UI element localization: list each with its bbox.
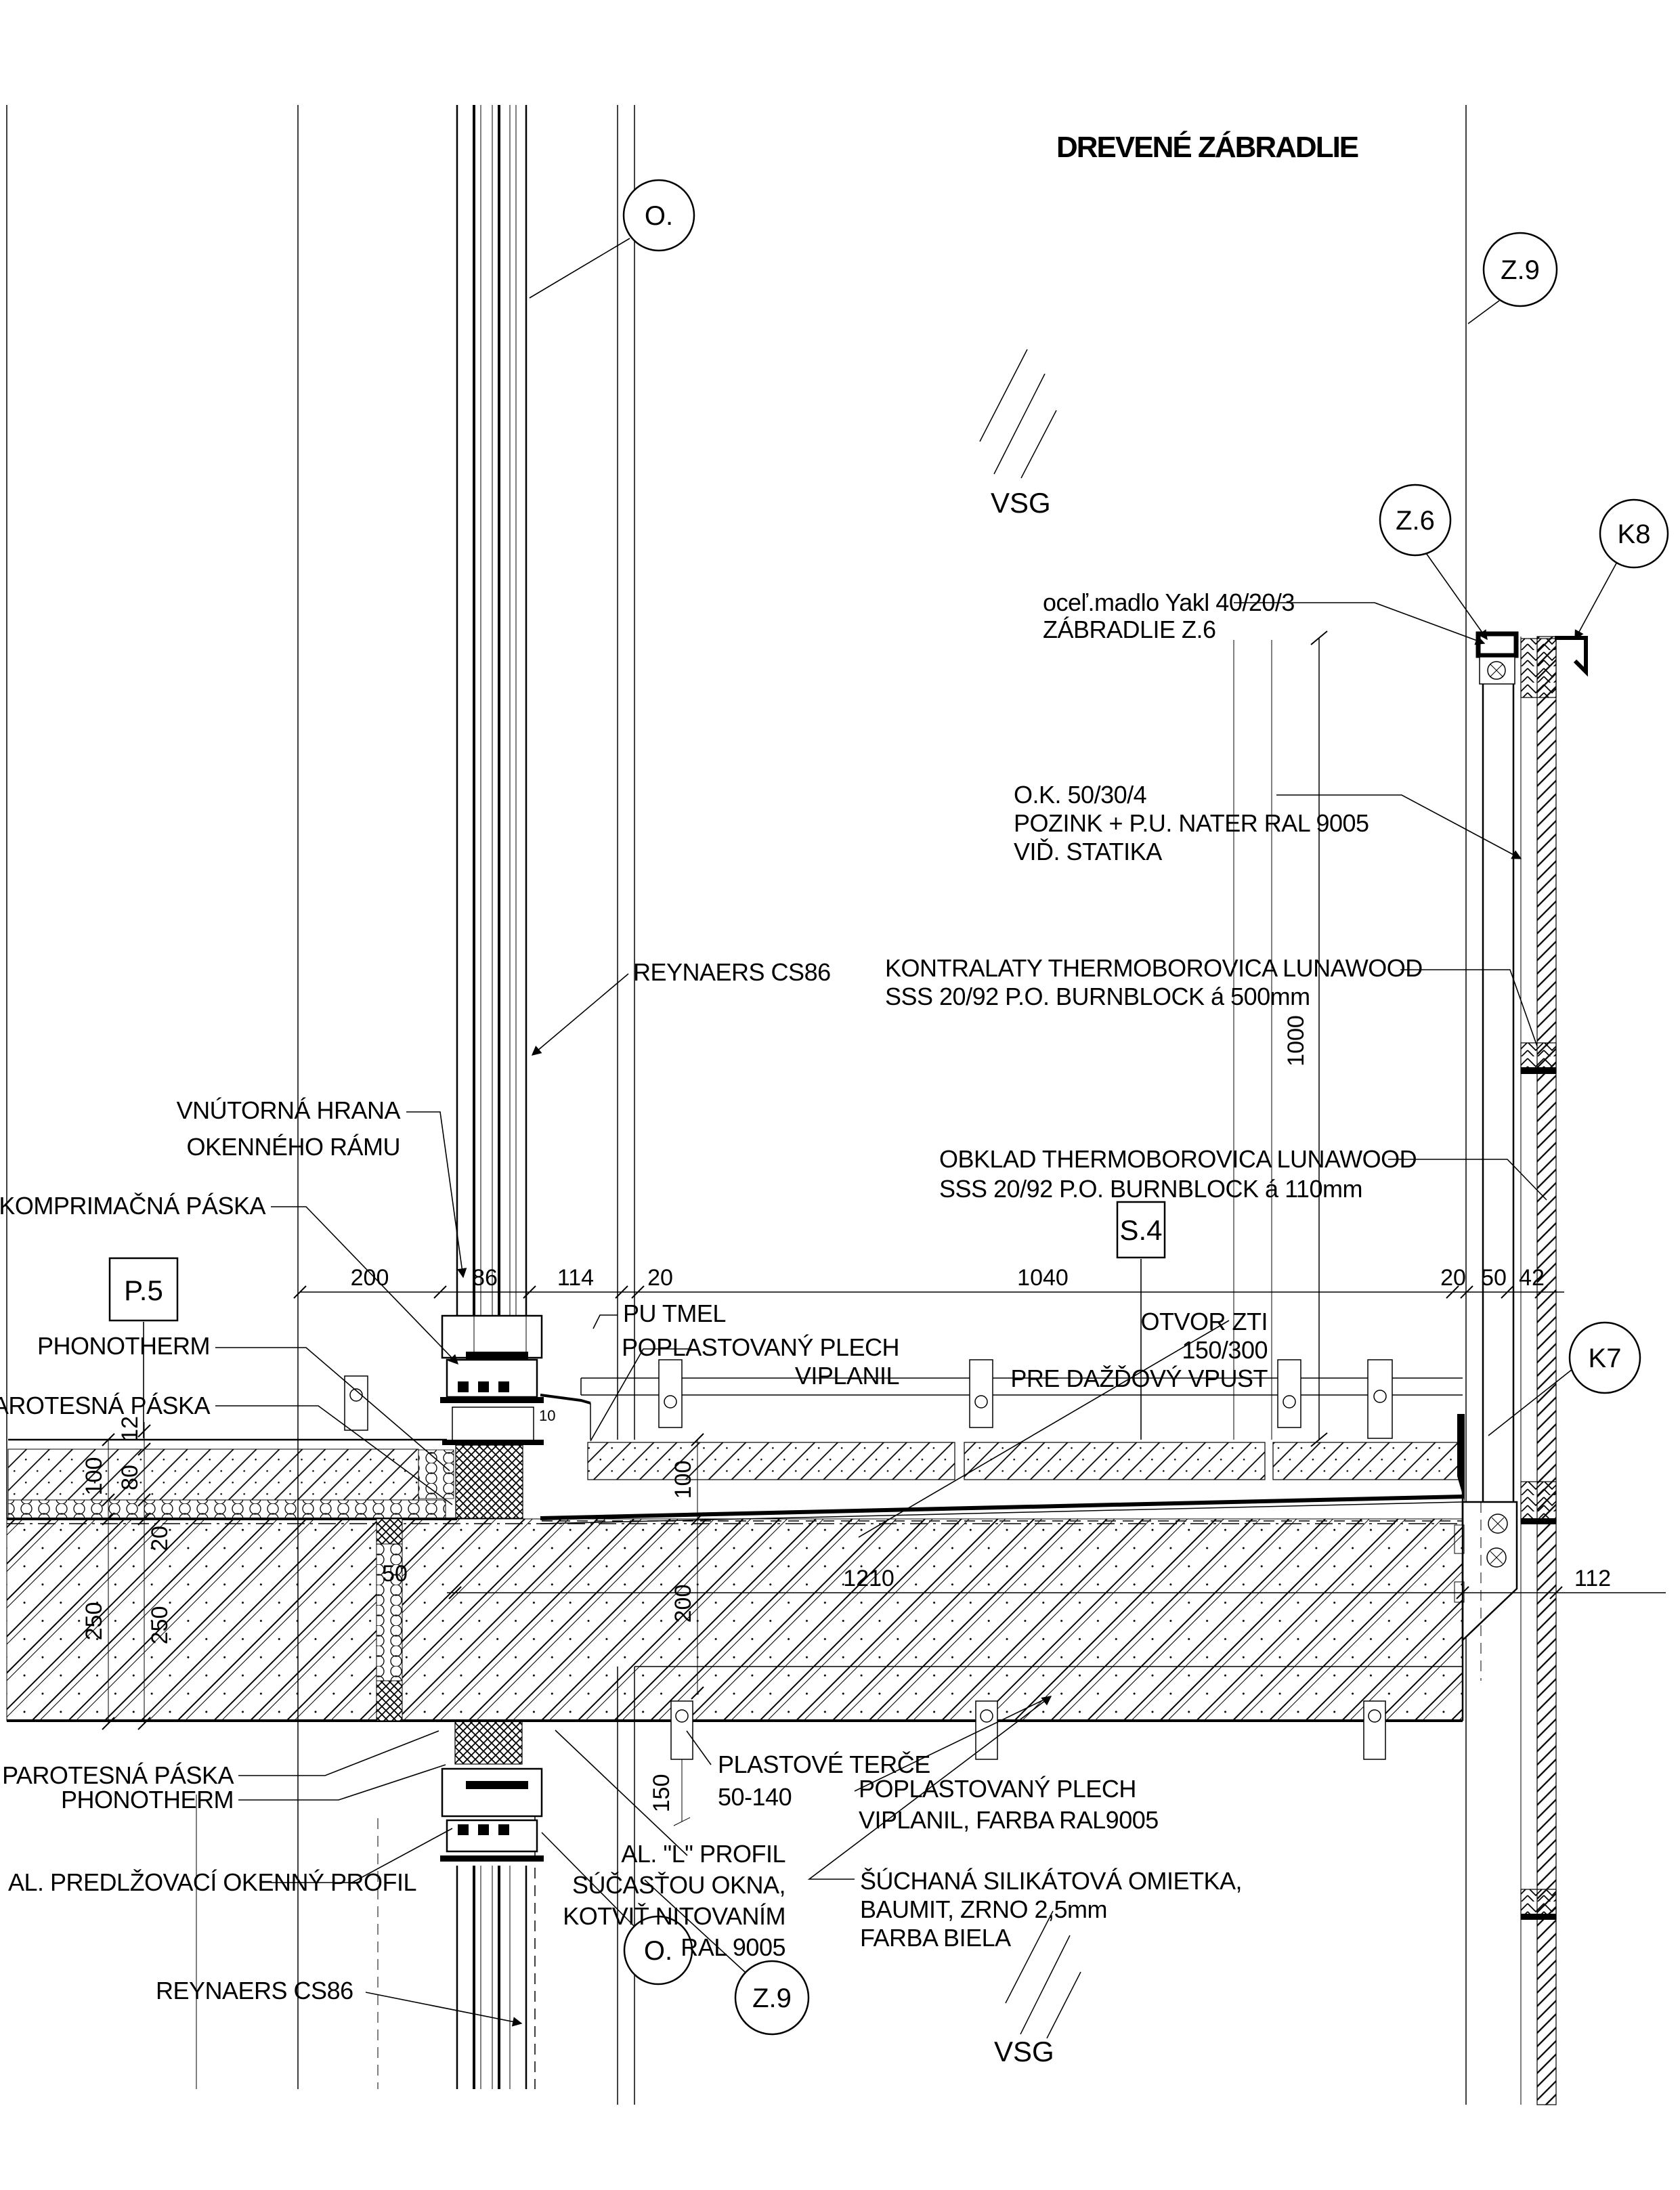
drawing-title: DREVENÉ ZÁBRADLIE bbox=[1056, 130, 1358, 164]
contralath-batten bbox=[1521, 639, 1556, 697]
dim-250a: 250 bbox=[81, 1602, 107, 1641]
dim-86: 86 bbox=[472, 1265, 498, 1291]
callout-z6: Z.6 bbox=[1396, 506, 1435, 536]
facade-cladding bbox=[1455, 634, 1586, 2105]
note-obklad-1: OBKLAD THERMOBOROVICA LUNAWOOD bbox=[939, 1145, 1417, 1173]
dim-100-left: 100 bbox=[81, 1457, 107, 1496]
note-phonotherm-top: PHONOTHERM bbox=[37, 1332, 210, 1360]
terrace-topping bbox=[1273, 1442, 1463, 1480]
wood-cladding-board bbox=[1537, 637, 1556, 2105]
phonotherm-block bbox=[456, 1445, 523, 1518]
impact-insulation-layer bbox=[8, 1500, 446, 1519]
dim-80: 80 bbox=[117, 1465, 143, 1490]
note-poplastovany-bottom-1: POPLASTOVANÝ PLECH bbox=[859, 1775, 1136, 1803]
dim-100-mid: 100 bbox=[670, 1461, 696, 1499]
note-al-l-2: SÚČASŤOU OKNA, bbox=[572, 1871, 785, 1899]
note-kontralaty-1: KONTRALATY THERMOBOROVICA LUNAWOOD bbox=[885, 954, 1423, 982]
terrace-topping bbox=[964, 1442, 1265, 1480]
note-otvor-2: 150/300 bbox=[1182, 1336, 1268, 1364]
dim-50: 50 bbox=[1481, 1265, 1507, 1291]
dim-1210: 1210 bbox=[843, 1566, 895, 1591]
leader-parotesna-bottom bbox=[238, 1731, 439, 1776]
membrane-viplanil bbox=[540, 1497, 1463, 1518]
callout-k7: K7 bbox=[1589, 1344, 1622, 1373]
leader-z9-top bbox=[1468, 301, 1499, 324]
note-otvor-1: OTVOR ZTI bbox=[1141, 1308, 1268, 1335]
leader-z6 bbox=[1425, 551, 1487, 639]
steel-handrail-section bbox=[1478, 634, 1516, 656]
note-otvor-3: PRE DAŽĎOVÝ VPUST bbox=[1010, 1365, 1268, 1392]
dim-12: 12 bbox=[117, 1416, 143, 1442]
leader-reynaers-top bbox=[532, 974, 628, 1055]
note-vnutorna-1: VNÚTORNÁ HRANA bbox=[177, 1096, 401, 1124]
note-handrail-2: ZÁBRADLIE Z.6 bbox=[1043, 616, 1216, 643]
phonotherm-block-lower bbox=[455, 1721, 522, 1764]
glass-label-bottom: VSG bbox=[994, 2036, 1054, 2067]
note-suchana-1: ŠÚCHANÁ SILIKÁTOVÁ OMIETKA, bbox=[860, 1867, 1242, 1895]
note-parotesna-bottom-1: PAROTESNÁ PÁSKA bbox=[2, 1761, 234, 1789]
glass-hatch-bottom bbox=[1006, 1911, 1081, 2038]
dim-1000: 1000 bbox=[1283, 1015, 1309, 1067]
glass-label-top: VSG bbox=[991, 487, 1051, 519]
note-handrail-1: oceľ.madlo Yakl 40/20/3 bbox=[1043, 588, 1295, 616]
note-obklad-2: SSS 20/92 P.O. BURNBLOCK á 110mm bbox=[939, 1175, 1362, 1203]
note-plastove-1: PLASTOVÉ TERČE bbox=[718, 1751, 930, 1778]
note-suchana-2: BAUMIT, ZRNO 2,5mm bbox=[860, 1895, 1107, 1923]
dim-20b: 20 bbox=[1440, 1265, 1466, 1291]
dim-112: 112 bbox=[1574, 1566, 1611, 1591]
note-reynaers-top: REYNAERS CS86 bbox=[633, 958, 831, 986]
drawing-canvas: 200 86 114 20 1040 20 50 42 1000 1210 11… bbox=[0, 0, 1680, 2190]
leader-vnutorna bbox=[406, 1112, 463, 1277]
callout-z9-top: Z.9 bbox=[1501, 255, 1540, 285]
leader-o-top bbox=[530, 238, 630, 298]
note-parotesna-bottom-2: PHONOTHERM bbox=[61, 1786, 234, 1813]
leader-k8 bbox=[1575, 562, 1617, 639]
note-al-predlzovaci: AL. PREDLŽOVACÍ OKENNÝ PROFIL bbox=[8, 1868, 416, 1896]
window-extension-assembly bbox=[440, 1721, 544, 1862]
callout-z9-bottom: Z.9 bbox=[752, 1983, 792, 2013]
note-steel-post-3: VIĎ. STATIKA bbox=[1014, 838, 1162, 865]
note-al-l-1: AL. "L" PROFIL bbox=[621, 1840, 785, 1868]
note-plastove-2: 50-140 bbox=[718, 1783, 792, 1811]
leader-phonotherm-bottom bbox=[238, 1765, 446, 1800]
text-labels: DREVENÉ ZÁBRADLIE VSG VSG oceľ.madlo Yak… bbox=[0, 130, 1423, 2067]
al-extension-profile bbox=[442, 1769, 542, 1816]
note-al-l-3: KOTVIŤ NITOVANÍM bbox=[563, 1902, 785, 1930]
note-komprimacna: KOMPRIMAČNÁ PÁSKA bbox=[0, 1192, 265, 1220]
dim-50-iso: 50 bbox=[382, 1561, 408, 1587]
note-steel-post-2: POZINK + P.U. NATER RAL 9005 bbox=[1014, 809, 1369, 837]
window-sill-assembly bbox=[418, 1316, 590, 1518]
note-steel-post-1: O.K. 50/30/4 bbox=[1014, 781, 1146, 809]
note-poplastovany-top-1: POPLASTOVANÝ PLECH bbox=[622, 1333, 899, 1361]
dimension-row-horizontal: 200 86 114 20 1040 20 50 42 bbox=[294, 1265, 1564, 1298]
callout-k8: K8 bbox=[1618, 519, 1651, 549]
ref-label-p5: P.5 bbox=[124, 1274, 163, 1306]
note-poplastovany-bottom-2: VIPLANIL, FARBA RAL9005 bbox=[859, 1806, 1159, 1834]
dim-250b: 250 bbox=[147, 1606, 173, 1645]
leader-pu-tmel bbox=[593, 1315, 618, 1329]
concrete-slab bbox=[7, 1519, 1463, 1721]
window-frame-profile bbox=[442, 1316, 542, 1358]
callout-o-bottom: O. bbox=[644, 1936, 672, 1966]
dim-42: 42 bbox=[1519, 1265, 1545, 1291]
dim-20-left: 20 bbox=[147, 1526, 173, 1551]
callout-o-top: O. bbox=[645, 201, 673, 231]
note-poplastovany-top-2: VIPLANIL bbox=[795, 1362, 899, 1390]
k8-flashing-profile bbox=[1555, 638, 1586, 672]
dimension-1000-vertical: 1000 bbox=[1283, 631, 1327, 1446]
contralath-batten bbox=[1521, 1482, 1556, 1522]
dim-10: 10 bbox=[539, 1407, 555, 1424]
screed-layer bbox=[8, 1449, 418, 1500]
dim-20: 20 bbox=[647, 1265, 673, 1291]
note-kontralaty-2: SSS 20/92 P.O. BURNBLOCK á 500mm bbox=[885, 983, 1310, 1010]
dim-200-mid: 200 bbox=[670, 1585, 696, 1623]
sill-flashing bbox=[540, 1395, 590, 1403]
note-pu-tmel: PU TMEL bbox=[623, 1300, 726, 1327]
terrace-topping bbox=[588, 1442, 955, 1480]
ref-label-s4: S.4 bbox=[1119, 1214, 1162, 1246]
note-parotesna-top: PAROTESNÁ PÁSKA bbox=[0, 1392, 210, 1419]
dim-150: 150 bbox=[649, 1774, 674, 1813]
dim-1040: 1040 bbox=[1017, 1265, 1069, 1291]
note-reynaers-bottom: REYNAERS CS86 bbox=[156, 1977, 353, 2004]
dim-114: 114 bbox=[557, 1265, 594, 1291]
glazing-gasket bbox=[466, 1352, 528, 1360]
note-suchana-3: FARBA BIELA bbox=[860, 1924, 1011, 1952]
note-al-l-4: RAL 9005 bbox=[681, 1933, 785, 1961]
glass-hatch-top bbox=[980, 349, 1056, 478]
note-vnutorna-2: OKENNÉHO RÁMU bbox=[186, 1133, 400, 1161]
architectural-detail-drawing: 200 86 114 20 1040 20 50 42 1000 1210 11… bbox=[0, 0, 1680, 2190]
leader-k7 bbox=[1488, 1369, 1572, 1436]
